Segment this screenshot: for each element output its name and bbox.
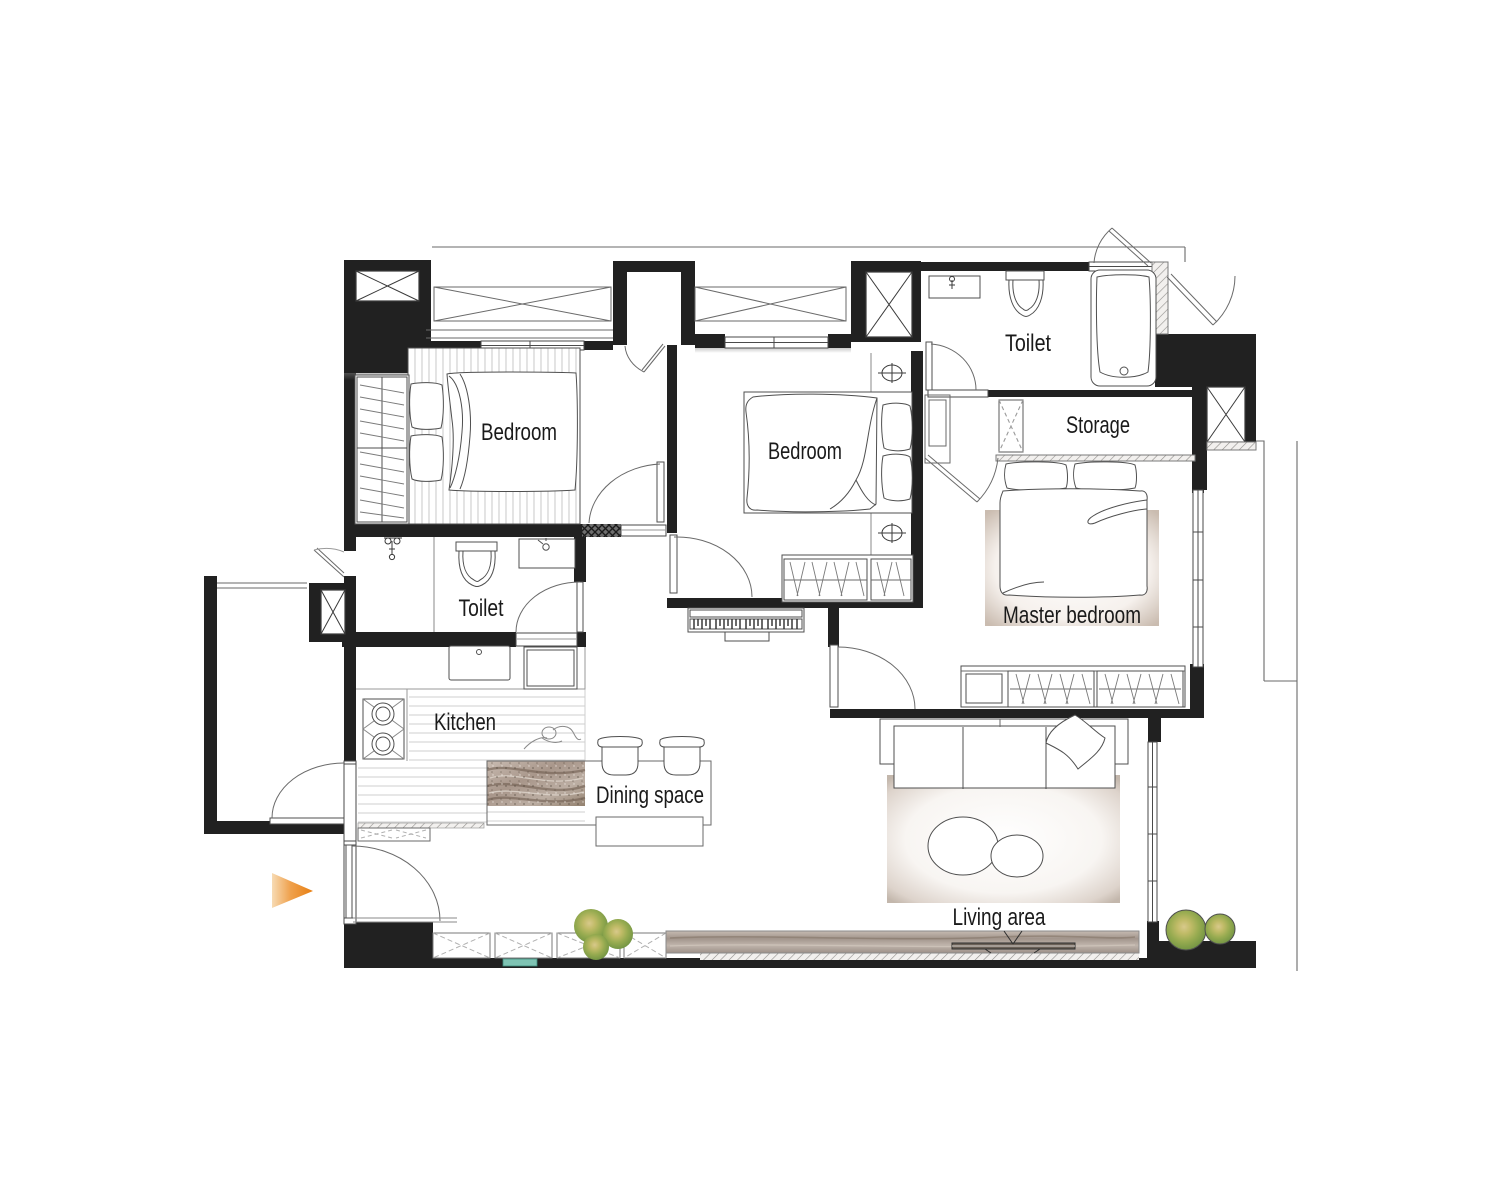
svg-text:Bedroom: Bedroom (481, 419, 557, 446)
svg-text:Storage: Storage (1066, 412, 1130, 439)
svg-text:Toilet: Toilet (1005, 330, 1051, 357)
svg-text:Toilet: Toilet (459, 595, 504, 622)
svg-text:Kitchen: Kitchen (434, 709, 496, 736)
svg-text:Bedroom: Bedroom (768, 438, 842, 465)
svg-text:Master bedroom: Master bedroom (1003, 602, 1141, 629)
svg-text:Living area: Living area (953, 904, 1047, 931)
svg-text:Dining space: Dining space (596, 782, 704, 809)
